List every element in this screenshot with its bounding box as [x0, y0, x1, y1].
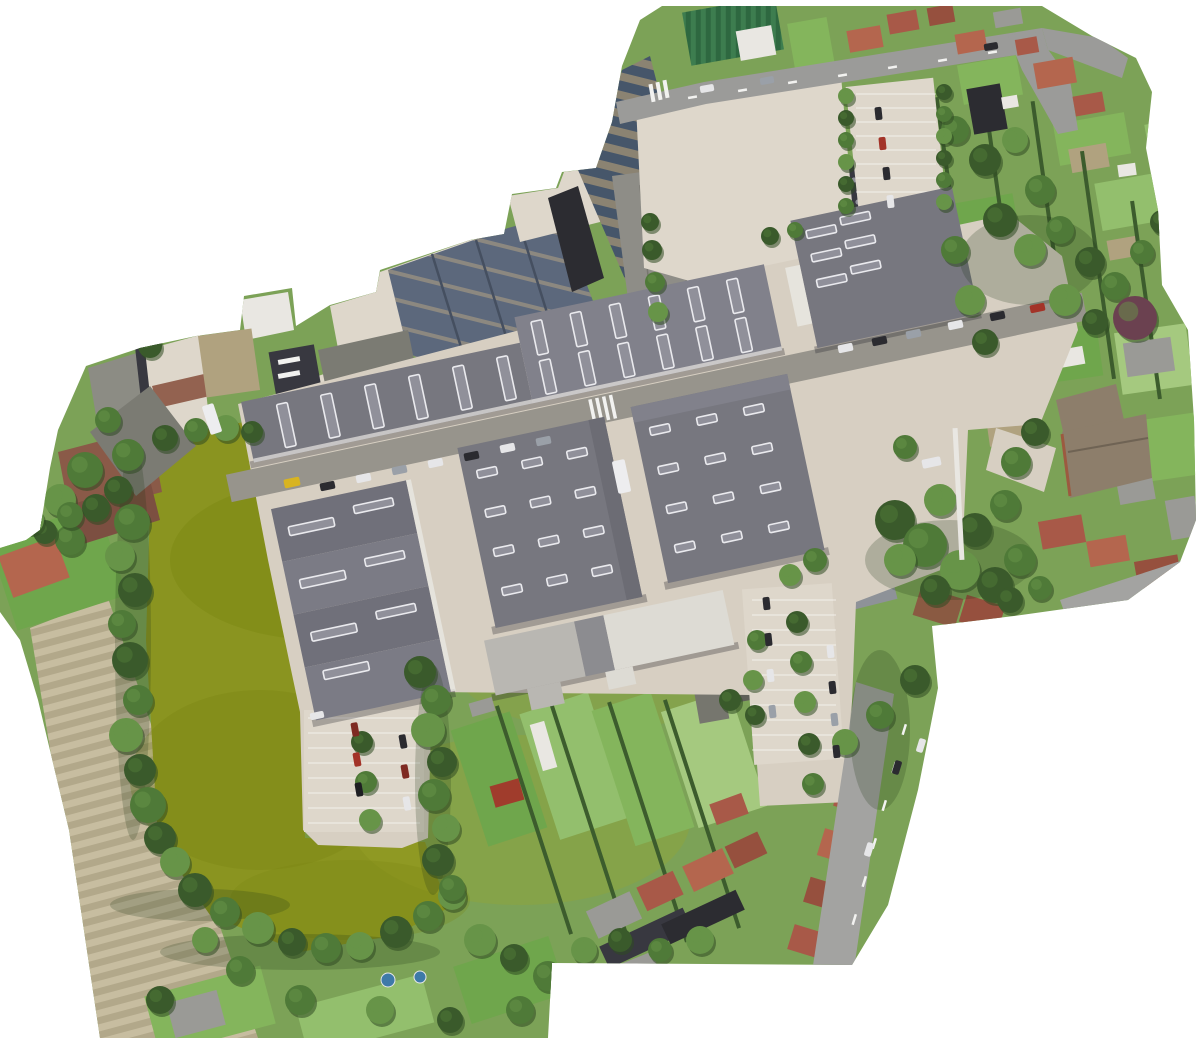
tree-highlight: [122, 577, 137, 592]
tree-highlight: [938, 152, 945, 159]
tree-highlight: [938, 86, 945, 93]
tree-highlight: [928, 488, 942, 502]
tree-highlight: [60, 505, 72, 517]
vehicle: [764, 633, 772, 647]
tree-highlight: [904, 669, 918, 683]
tree-highlight: [643, 215, 651, 223]
tree-highlight: [436, 818, 449, 831]
aerial-orthophoto: [0, 0, 1200, 1038]
tree-highlight: [987, 207, 1002, 222]
tree-highlight: [880, 505, 898, 523]
house-roof: [926, 754, 969, 821]
vehicle: [762, 597, 770, 611]
tree-highlight: [431, 751, 445, 765]
tree-highlight: [422, 783, 436, 797]
tree-highlight: [415, 717, 430, 732]
tree-highlight: [98, 410, 110, 422]
house-roof: [736, 25, 777, 61]
tree-highlight: [150, 990, 163, 1003]
tree-highlight: [246, 916, 260, 930]
tree-highlight: [358, 774, 368, 784]
tree-highlight: [48, 488, 62, 502]
tree-highlight: [135, 792, 151, 808]
tree-highlight: [938, 174, 945, 181]
tree-highlight: [840, 156, 847, 163]
tree-highlight: [155, 428, 167, 440]
tree-highlight: [835, 732, 847, 744]
tree-highlight: [945, 240, 958, 253]
tree-highlight: [975, 332, 987, 344]
tree-highlight: [1018, 238, 1032, 252]
tree-highlight: [504, 948, 517, 961]
house-roof: [556, 977, 608, 1020]
tree-highlight: [1079, 251, 1093, 265]
tree-highlight: [651, 941, 662, 952]
tree-highlight: [187, 421, 198, 432]
tree-highlight: [797, 694, 807, 704]
tree-highlight: [690, 930, 703, 943]
tree-highlight: [1105, 276, 1118, 289]
tree-highlight: [1085, 312, 1097, 324]
vehicle: [768, 705, 776, 719]
vehicle: [830, 713, 838, 727]
tree-highlight: [648, 275, 657, 284]
tree-highlight: [72, 457, 88, 473]
tree-highlight: [128, 758, 142, 772]
tree-highlight: [801, 736, 811, 746]
aerial-photo-stage: [0, 0, 1200, 1038]
tree: [1150, 210, 1174, 234]
tree-highlight: [214, 901, 228, 915]
tree-highlight: [840, 90, 847, 97]
tree-highlight: [973, 148, 987, 162]
tree-highlight: [1153, 213, 1164, 224]
tree-highlight: [574, 940, 586, 952]
vehicle: [828, 681, 836, 695]
tree-highlight: [20, 510, 33, 523]
vehicle: [878, 137, 886, 151]
tree-highlight: [763, 229, 771, 237]
tree-highlight: [782, 567, 792, 577]
tree-highlight: [909, 529, 929, 549]
tree-highlight: [182, 877, 197, 892]
tree-highlight: [840, 200, 847, 207]
house-roof: [1123, 337, 1175, 377]
tree-highlight: [537, 965, 551, 979]
tree-highlight: [888, 548, 902, 562]
tree-highlight: [408, 660, 422, 674]
tree-highlight: [86, 498, 99, 511]
tree-highlight: [1005, 130, 1017, 142]
tree-highlight: [362, 812, 372, 822]
tree-highlight: [645, 243, 654, 252]
tree-highlight: [148, 826, 162, 840]
tree-highlight: [109, 545, 123, 559]
tree-highlight: [959, 289, 973, 303]
tree-highlight: [442, 878, 454, 890]
vehicle: [832, 745, 840, 759]
vehicle: [766, 669, 774, 683]
tree-highlight: [1000, 590, 1012, 602]
tree-highlight: [805, 776, 815, 786]
tree-highlight: [1050, 220, 1063, 233]
shed: [198, 329, 260, 398]
tree-highlight: [651, 305, 660, 314]
tree-highlight: [112, 614, 125, 627]
tree-highlight: [1053, 288, 1067, 302]
tree-highlight: [510, 1000, 523, 1013]
tree-highlight: [806, 551, 817, 562]
tree: [16, 506, 44, 534]
tree-highlight: [840, 112, 847, 119]
tree-highlight: [244, 424, 254, 434]
vehicle: [886, 195, 894, 209]
vehicle: [882, 167, 890, 181]
tree-highlight: [127, 689, 141, 703]
shed: [1117, 163, 1136, 177]
tree-highlight: [417, 905, 431, 919]
tree-highlight: [840, 134, 847, 141]
tree-highlight: [793, 654, 803, 664]
tree-highlight: [141, 337, 152, 348]
tree-highlight: [195, 930, 207, 942]
tree-highlight: [896, 438, 907, 449]
tree-highlight: [938, 108, 945, 115]
tree-highlight: [117, 647, 133, 663]
tree-highlight: [1031, 579, 1042, 590]
tree-highlight: [870, 705, 883, 718]
tree-highlight: [116, 443, 130, 457]
tree-highlight: [1008, 548, 1022, 562]
tree-highlight: [468, 928, 482, 942]
tree-highlight: [230, 960, 243, 973]
tree-highlight: [840, 178, 847, 185]
tree-highlight: [113, 722, 128, 737]
tree-highlight: [924, 579, 938, 593]
tree-highlight: [746, 673, 755, 682]
tree-highlight: [994, 494, 1008, 508]
pool: [414, 971, 426, 983]
lawn-patch: [1144, 116, 1200, 194]
house-roof: [949, 698, 987, 755]
tree-highlight: [425, 689, 439, 703]
tree-highlight: [962, 517, 977, 532]
tree-highlight: [1133, 243, 1144, 254]
tree-highlight: [440, 1010, 452, 1022]
tree-highlight: [370, 1000, 383, 1013]
tree-highlight: [282, 932, 295, 945]
vehicle: [826, 645, 834, 659]
pool: [381, 973, 395, 987]
tree-highlight: [938, 196, 945, 203]
tree-highlight: [722, 692, 732, 702]
tree-highlight: [748, 708, 757, 717]
tree-highlight: [315, 937, 329, 951]
tree-highlight: [1025, 422, 1038, 435]
tree-highlight: [108, 480, 121, 493]
tree-highlight: [164, 851, 178, 865]
tree-highlight: [1005, 451, 1019, 465]
tree-highlight: [350, 936, 363, 949]
vehicle: [874, 107, 882, 121]
tree-highlight: [611, 931, 622, 942]
tree-highlight: [426, 848, 440, 862]
tree-highlight: [119, 508, 135, 524]
tree-highlight: [938, 130, 945, 137]
tree-highlight: [1029, 179, 1043, 193]
tree-highlight: [384, 920, 398, 934]
tree-highlight: [289, 989, 303, 1003]
tree-highlight: [750, 633, 759, 642]
tree-highlight: [1119, 302, 1139, 322]
tree-highlight: [789, 614, 799, 624]
tree-highlight: [982, 572, 998, 588]
tree-highlight: [789, 224, 796, 231]
